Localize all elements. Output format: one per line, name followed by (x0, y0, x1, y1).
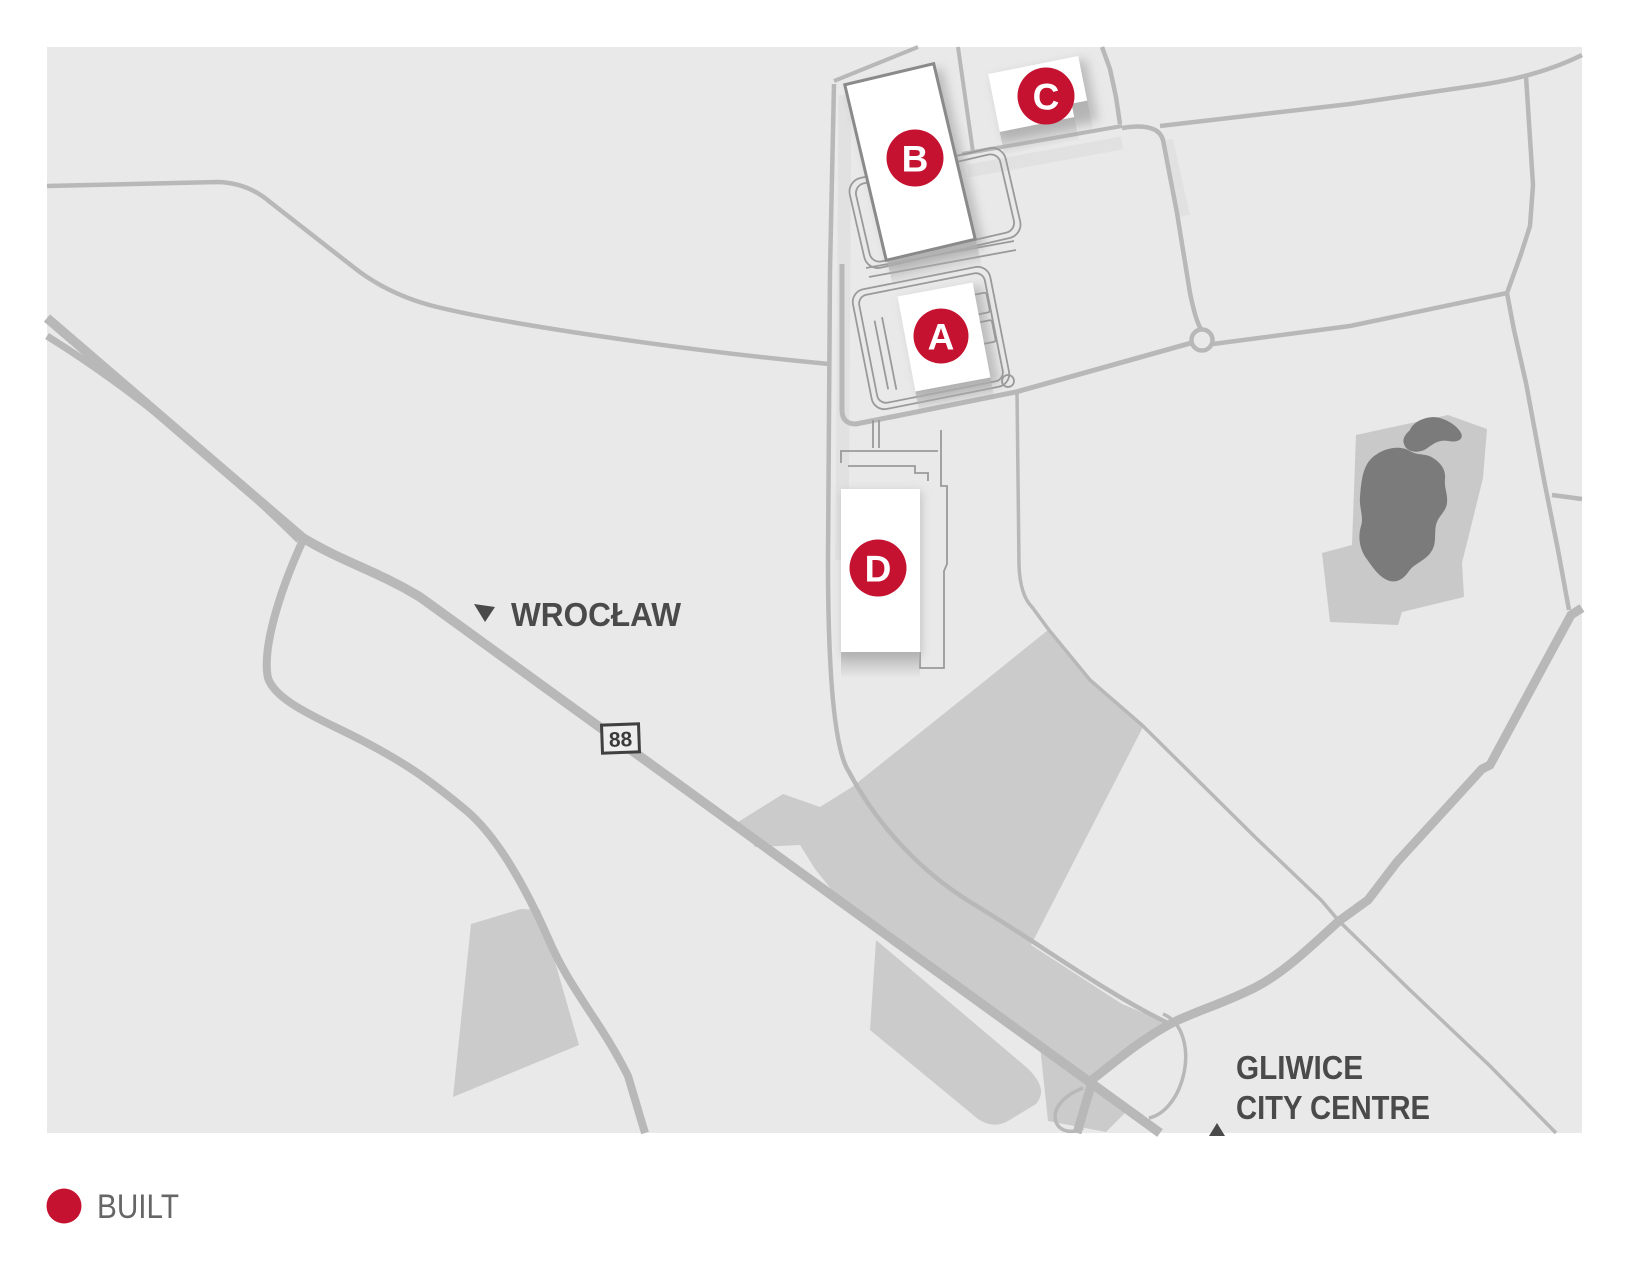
svg-text:WROCŁAW: WROCŁAW (511, 596, 682, 633)
svg-text:CITY CENTRE: CITY CENTRE (1236, 1089, 1430, 1126)
svg-text:GLIWICE: GLIWICE (1236, 1049, 1363, 1086)
svg-text:BUILT: BUILT (97, 1188, 179, 1226)
svg-text:D: D (865, 549, 892, 590)
svg-text:C: C (1033, 77, 1060, 118)
svg-text:B: B (902, 139, 929, 180)
svg-text:88: 88 (608, 728, 632, 752)
svg-text:A: A (928, 317, 955, 358)
